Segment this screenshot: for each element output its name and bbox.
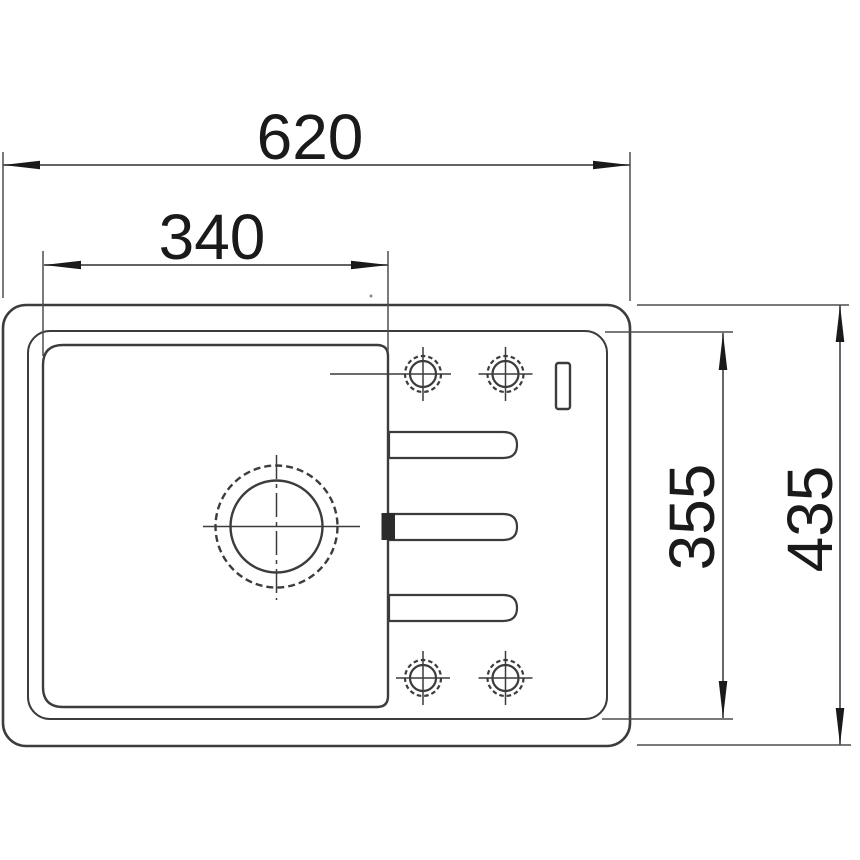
dim-basin-depth-label: 355 [660, 464, 724, 571]
drain [203, 455, 360, 600]
overflow-slot [556, 363, 570, 409]
arrowhead-right [351, 261, 388, 270]
arrowhead-left [44, 261, 81, 270]
arrowhead-top [719, 333, 728, 370]
drawing-canvas [0, 0, 860, 860]
arrowhead-left [3, 161, 40, 170]
drainer-groove-1 [389, 432, 517, 458]
tap-hole-top-right [479, 347, 533, 401]
tap-hole-bottom-right [479, 651, 533, 705]
drainer-groove-3 [389, 595, 517, 621]
dim-overall-depth-label: 435 [778, 466, 842, 573]
arrowhead-bottom [719, 681, 728, 718]
dim-overall-width [3, 152, 630, 301]
arrowhead-right [593, 161, 630, 170]
tap-hole-bottom-left [396, 651, 450, 705]
divider-overflow-marker [382, 513, 396, 540]
arrowhead-top [836, 305, 845, 342]
sink-rim-inner-edge [28, 331, 607, 719]
arrowhead-bottom [836, 708, 845, 745]
dim-bowl-width-label: 340 [159, 205, 266, 269]
drainer-groove-2 [389, 514, 517, 540]
tap-hole-top-left [330, 347, 451, 401]
sink-technical-drawing: 620 340 355 435 [0, 0, 860, 860]
sink-outer-edge [3, 305, 630, 746]
stray-dot [370, 295, 373, 298]
dim-overall-width-label: 620 [257, 105, 364, 169]
